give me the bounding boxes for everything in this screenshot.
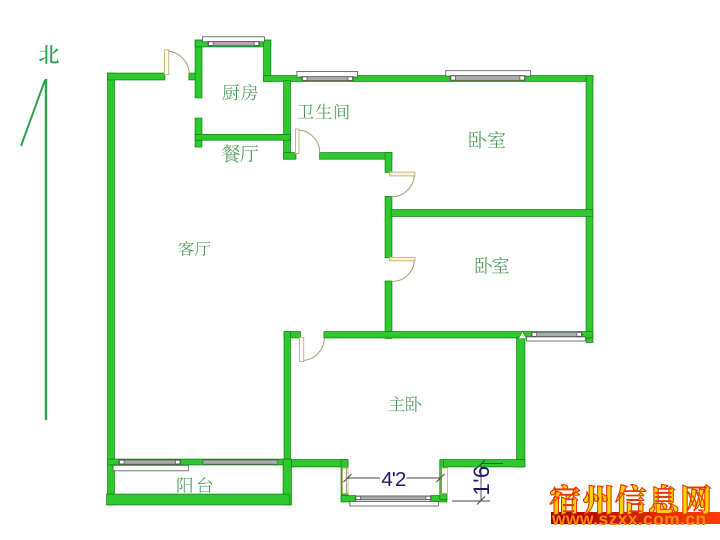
svg-text:1'6: 1'6 [469, 465, 494, 495]
svg-text:4'2: 4'2 [381, 468, 406, 491]
